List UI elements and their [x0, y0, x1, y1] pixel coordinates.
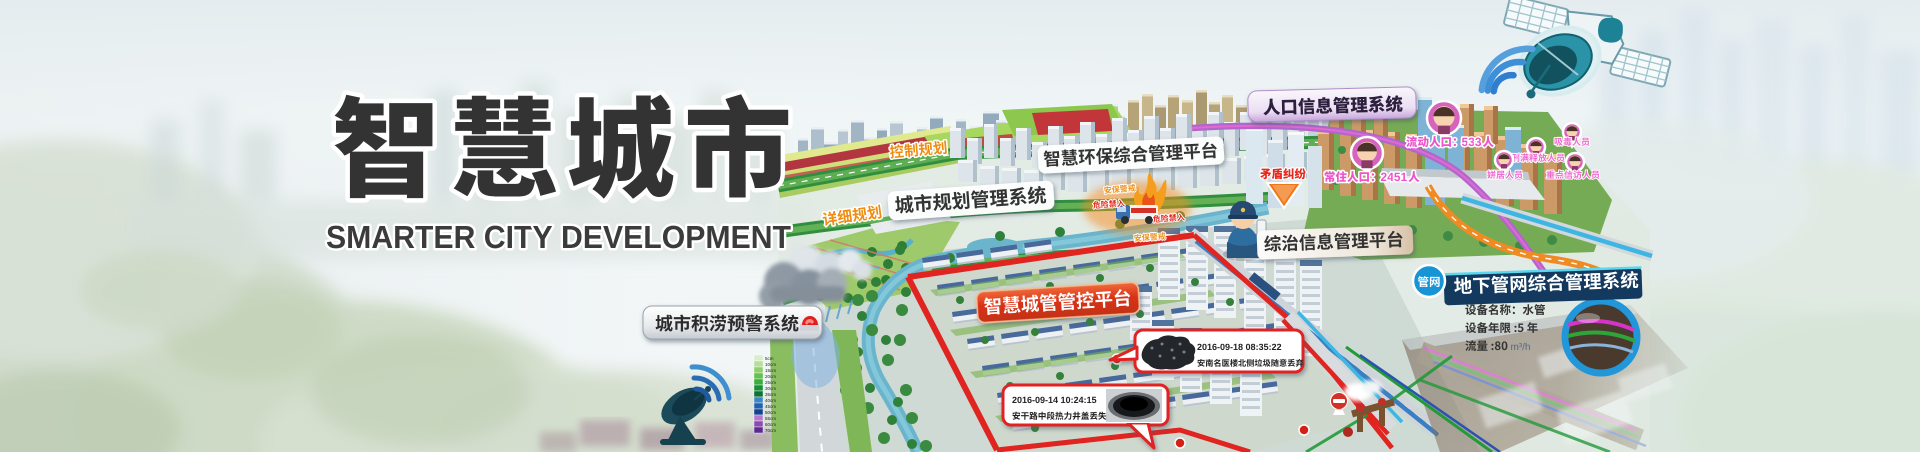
svg-text:20cm: 20cm: [765, 374, 776, 379]
svg-text:60cm: 60cm: [765, 422, 776, 427]
svg-text:40cm: 40cm: [765, 398, 776, 403]
svg-text:10cm: 10cm: [765, 362, 776, 367]
svg-text:50cm: 50cm: [765, 410, 776, 415]
svg-text:30cm: 30cm: [765, 386, 776, 391]
svg-text:15cm: 15cm: [765, 368, 776, 373]
svg-text:25cm: 25cm: [765, 380, 776, 385]
svg-text:70cm: 70cm: [765, 428, 776, 433]
svg-text:5cm: 5cm: [765, 356, 774, 361]
svg-text:55cm: 55cm: [765, 416, 776, 421]
svg-text:45cm: 45cm: [765, 404, 776, 409]
svg-text:35cm: 35cm: [765, 392, 776, 397]
